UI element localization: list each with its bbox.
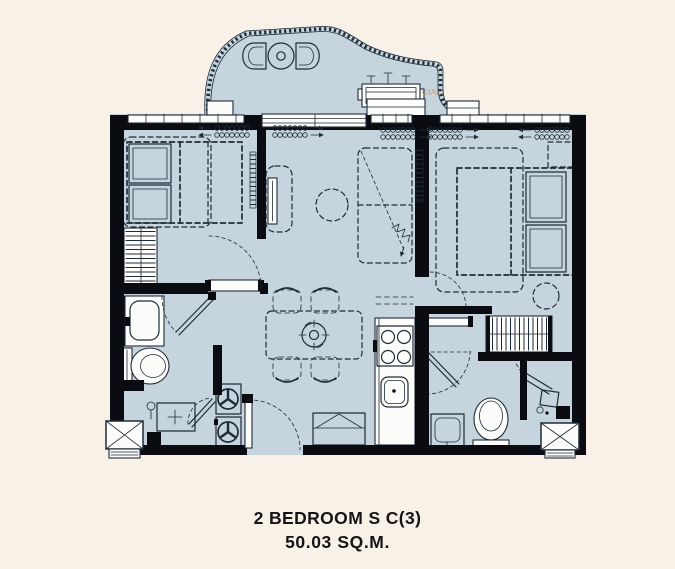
- balcony-sliding-door: [262, 114, 366, 127]
- floor-plan-drawing: CIAL': [0, 0, 675, 569]
- unit-type-label: 2 BEDROOM S C(3): [0, 508, 675, 529]
- window: [440, 114, 570, 124]
- window: [371, 114, 412, 124]
- toilet-icon: [118, 348, 169, 384]
- wardrobe-icon: [486, 316, 552, 352]
- window: [128, 114, 244, 124]
- sliding-door-icon: [250, 152, 256, 208]
- watermark-text: CIAL': [422, 87, 443, 97]
- unit-area-label: 50.03 SQ.M.: [0, 532, 675, 553]
- floor-plan-page: CIAL' 2 BEDROOM S C(3) 50.03 SQ.M.: [0, 0, 675, 569]
- service-shaft-icon: [541, 423, 579, 458]
- service-shaft-icon: [106, 421, 143, 458]
- entrance-opening: [247, 445, 303, 455]
- plan-title: 2 BEDROOM S C(3) 50.03 SQ.M.: [0, 508, 675, 553]
- wardrobe-icon: [124, 228, 157, 290]
- vanity-sink-icon: [118, 296, 164, 346]
- toilet-icon: [473, 398, 509, 451]
